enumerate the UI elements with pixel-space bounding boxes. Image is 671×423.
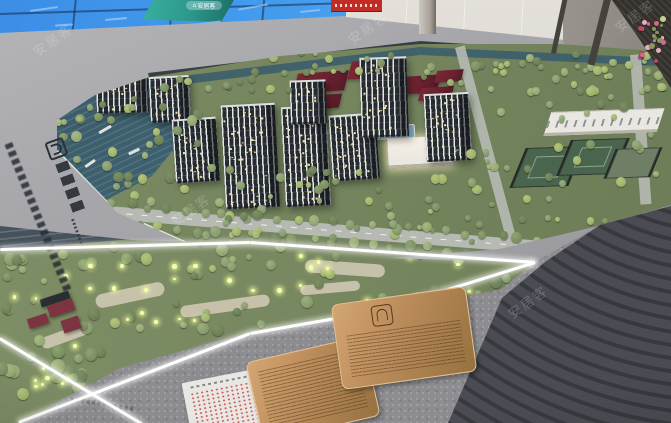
lit-window (256, 196, 258, 198)
tree (153, 57, 158, 62)
lit-window (251, 189, 253, 191)
lit-window (447, 130, 449, 132)
lit-window (308, 138, 310, 140)
tree (309, 166, 317, 174)
lit-window (121, 78, 123, 80)
tree (616, 177, 626, 187)
tree (3, 273, 11, 281)
tree (303, 69, 309, 75)
screen-map-line (105, 17, 127, 20)
tree (249, 87, 255, 93)
tree (252, 230, 260, 238)
screen-map-line (300, 9, 320, 13)
tree (632, 140, 642, 150)
tree (377, 59, 385, 67)
tree (73, 156, 80, 163)
tree (648, 132, 654, 138)
lit-window (200, 176, 202, 178)
tree (597, 100, 604, 107)
tree (546, 101, 553, 108)
tree (102, 161, 111, 170)
tree (110, 318, 119, 327)
tree (87, 104, 93, 110)
lit-window (259, 132, 261, 134)
park-light (41, 383, 44, 386)
park-light (178, 318, 181, 321)
lit-window (442, 120, 444, 122)
site-plan-red-units (189, 381, 258, 423)
lit-window (314, 97, 316, 99)
lit-window (314, 100, 316, 102)
tree (309, 215, 319, 225)
lit-window (312, 125, 314, 127)
tree (108, 147, 118, 157)
tree (193, 228, 202, 237)
tree (504, 61, 510, 67)
tree (355, 67, 363, 75)
lit-window (449, 99, 451, 101)
tree (12, 255, 22, 265)
park-light (193, 319, 196, 322)
lit-window (445, 129, 447, 131)
lit-window (286, 136, 288, 138)
lit-window (385, 105, 387, 107)
tree (461, 231, 468, 238)
park-light (299, 284, 302, 287)
tree (645, 68, 652, 75)
tree (478, 231, 486, 239)
tree (113, 183, 120, 190)
tree (115, 217, 123, 225)
lit-window (437, 123, 439, 125)
park-light (193, 264, 197, 268)
tree (601, 66, 608, 73)
tree (468, 178, 477, 187)
lit-window (455, 114, 457, 116)
tree (314, 279, 324, 289)
flower (654, 21, 659, 26)
lit-window (298, 149, 300, 151)
lit-window (200, 153, 202, 155)
lit-window (373, 129, 375, 131)
tree (233, 308, 241, 316)
lit-window (132, 66, 134, 68)
lit-window (114, 89, 116, 91)
tree (312, 63, 319, 70)
lit-window (231, 204, 233, 206)
tree (136, 324, 144, 332)
led-ticker-text-illegible (335, 4, 377, 7)
lit-window (252, 139, 254, 141)
lit-window (121, 63, 123, 65)
park-light (34, 385, 38, 389)
lit-window (388, 75, 390, 77)
residential-tower (289, 79, 327, 124)
tree (354, 225, 360, 231)
lit-window (224, 121, 226, 123)
lit-window (302, 140, 304, 142)
lit-window (198, 172, 200, 174)
lit-window (340, 128, 342, 130)
park-light (277, 288, 282, 293)
lit-window (299, 164, 301, 166)
lit-window (265, 200, 267, 202)
lit-window (446, 113, 448, 115)
lit-window (234, 172, 236, 174)
tree (83, 93, 89, 99)
lit-window (337, 155, 339, 157)
tree (493, 68, 498, 73)
lit-window (253, 203, 255, 205)
lit-window (196, 167, 198, 169)
lit-window (437, 134, 439, 136)
lit-window (364, 161, 366, 163)
tree (593, 66, 602, 75)
lit-window (295, 157, 297, 159)
tree (332, 252, 341, 261)
tree (524, 165, 531, 172)
tree (442, 226, 450, 234)
lit-window (195, 171, 197, 173)
lit-window (385, 74, 387, 76)
lit-window (367, 171, 369, 173)
tree (273, 216, 280, 223)
lit-window (234, 158, 236, 160)
tree (325, 269, 335, 279)
tree (519, 60, 526, 67)
lit-window (336, 168, 338, 170)
lit-window (384, 107, 386, 109)
lit-window (126, 79, 128, 81)
park-light (299, 254, 303, 258)
tree (212, 324, 224, 336)
lit-window (342, 142, 344, 144)
lit-window (453, 99, 455, 101)
tree (523, 195, 531, 203)
lit-window (240, 145, 242, 147)
sales-center-sandtable-photo: 安居客 安居客 安居客 安居客 安居客 ⌂ 安居客 (0, 0, 671, 423)
lit-window (302, 152, 304, 154)
park-light (173, 278, 176, 281)
lit-window (309, 191, 311, 193)
park-light (251, 289, 255, 293)
tree (107, 116, 115, 124)
lit-window (285, 128, 287, 130)
tree (19, 266, 26, 273)
tree (572, 51, 579, 58)
lit-window (287, 119, 289, 121)
flower (660, 16, 666, 22)
tree (210, 226, 220, 236)
lit-window (134, 83, 136, 85)
tree (340, 68, 345, 73)
lit-window (308, 164, 310, 166)
plaque-arch-logo (370, 303, 394, 327)
tree (476, 221, 483, 228)
flower (647, 22, 650, 25)
lit-window (191, 170, 193, 172)
house-icon: ⌂ (193, 3, 197, 9)
tree (471, 61, 480, 70)
tree (146, 141, 153, 148)
flower-arrangement (636, 16, 670, 64)
tree (124, 172, 133, 181)
lit-window (452, 131, 454, 133)
tree (571, 81, 577, 87)
park-light (61, 382, 64, 385)
lit-window (305, 150, 307, 152)
tree (532, 87, 540, 95)
lit-window (296, 100, 298, 102)
lit-window (305, 165, 307, 167)
lit-window (190, 153, 192, 155)
flower (649, 43, 655, 49)
tree (88, 308, 100, 320)
lit-window (305, 86, 307, 88)
tree (405, 240, 416, 251)
tree (519, 216, 526, 223)
residential-tower (423, 92, 471, 162)
lit-window (239, 159, 241, 161)
lit-window (432, 118, 434, 120)
tree (95, 347, 105, 357)
lit-window (390, 127, 392, 129)
park-light (172, 264, 176, 268)
tree (511, 232, 521, 242)
lit-window (125, 87, 127, 89)
tree (136, 221, 145, 230)
tree (173, 61, 179, 67)
tree (376, 187, 382, 193)
tree (458, 80, 463, 85)
lit-window (364, 116, 366, 118)
park-light (45, 376, 49, 380)
arch-icon (376, 308, 389, 321)
tree (286, 87, 292, 93)
tree (488, 86, 494, 92)
lit-window (304, 179, 306, 181)
tree (611, 114, 617, 120)
tree (375, 68, 380, 73)
tree (369, 240, 378, 249)
tree (490, 277, 501, 288)
tree (269, 53, 278, 62)
lit-window (254, 121, 256, 123)
lit-window (163, 114, 165, 116)
lit-window (298, 94, 300, 96)
lit-window (266, 175, 268, 177)
lit-window (373, 132, 375, 134)
tree (257, 320, 265, 328)
lit-window (242, 158, 244, 160)
lit-window (351, 144, 353, 146)
lit-window (183, 153, 185, 155)
park-light (73, 344, 77, 348)
park-light (88, 287, 91, 290)
lit-window (156, 93, 158, 95)
lit-window (380, 110, 382, 112)
tree (197, 323, 209, 335)
tree (552, 75, 560, 83)
lit-window (443, 147, 445, 149)
lit-window (440, 113, 442, 115)
lit-window (364, 93, 366, 95)
tree (201, 313, 210, 322)
tree (561, 68, 569, 76)
tree (389, 220, 397, 228)
tree (500, 69, 507, 76)
lit-window (262, 186, 264, 188)
lit-window (261, 118, 263, 120)
lit-window (285, 115, 287, 117)
tree (405, 223, 412, 230)
tree (63, 88, 74, 99)
tree (187, 115, 197, 125)
park-path (180, 294, 271, 318)
tree (490, 163, 498, 171)
tree (246, 254, 252, 260)
lit-window (231, 133, 233, 135)
flower (660, 24, 663, 27)
tree (555, 217, 560, 222)
lit-window (371, 70, 373, 72)
tree (583, 68, 588, 73)
lit-window (444, 124, 446, 126)
lit-window (367, 72, 369, 74)
lit-window (112, 93, 114, 95)
lit-window (178, 177, 180, 179)
tree (191, 272, 198, 279)
lit-window (369, 117, 371, 119)
lit-window (371, 102, 373, 104)
tree (485, 159, 490, 164)
lit-window (437, 116, 439, 118)
tree (180, 185, 188, 193)
tree (504, 165, 510, 171)
tree (447, 79, 454, 86)
lit-window (373, 98, 375, 100)
tree (489, 202, 495, 208)
tree (227, 262, 236, 271)
lit-window (178, 114, 180, 116)
park-light (456, 263, 460, 267)
tree (577, 87, 584, 94)
lit-window (288, 169, 290, 171)
lit-window (254, 152, 256, 154)
tree (241, 302, 248, 309)
tree (584, 110, 589, 115)
flower (640, 53, 644, 57)
tree (2, 303, 13, 314)
lit-window (303, 196, 305, 198)
tree (575, 64, 580, 69)
tree (209, 265, 216, 272)
lit-window (171, 88, 173, 90)
lit-window (373, 116, 375, 118)
tree (385, 202, 393, 210)
tree (424, 69, 430, 75)
lit-window (122, 93, 124, 95)
tree (165, 172, 176, 183)
lit-window (244, 112, 246, 114)
tree (432, 203, 440, 211)
tree (607, 73, 613, 79)
tree (76, 116, 83, 123)
tree (388, 52, 394, 58)
lit-window (444, 102, 446, 104)
lit-window (433, 126, 435, 128)
tree (215, 198, 224, 207)
tree (587, 217, 595, 225)
lit-window (309, 110, 311, 112)
lit-window (301, 134, 303, 136)
lit-window (454, 150, 456, 152)
lit-window (389, 88, 391, 90)
park-path (300, 280, 361, 295)
lit-window (172, 102, 174, 104)
tree (369, 221, 376, 228)
tree (202, 231, 210, 239)
tree (349, 237, 359, 247)
tree (364, 56, 370, 62)
lit-window (431, 140, 433, 142)
tree (138, 174, 148, 184)
lit-window (174, 84, 176, 86)
park-light (227, 278, 232, 283)
plaque-engraved-text-illegible (346, 318, 466, 380)
lit-window (261, 131, 263, 133)
lit-window (177, 95, 179, 97)
tree (323, 171, 328, 176)
park-light (140, 311, 144, 315)
tree (237, 79, 244, 86)
lit-window (159, 95, 161, 97)
park-light (467, 290, 471, 294)
lit-window (457, 149, 459, 151)
lit-window (235, 176, 237, 178)
tree (545, 215, 551, 221)
tree (483, 149, 489, 155)
tree (180, 322, 186, 328)
lit-window (357, 155, 359, 157)
lit-window (165, 94, 167, 96)
flower (661, 40, 666, 45)
tree (173, 300, 180, 307)
lit-window (288, 184, 290, 186)
tree (644, 85, 651, 92)
tree (154, 135, 164, 145)
lit-window (306, 102, 308, 104)
wall-column (419, 0, 436, 34)
lit-window (108, 75, 110, 77)
lit-window (181, 134, 183, 136)
tree (425, 196, 432, 203)
tree (524, 251, 534, 261)
lit-window (288, 129, 290, 131)
tree (176, 76, 183, 83)
tree (71, 131, 82, 142)
tree (608, 94, 614, 100)
park-light (326, 267, 329, 270)
tree (298, 49, 306, 57)
tree (497, 108, 505, 116)
tree (276, 173, 285, 182)
lit-window (376, 88, 378, 90)
tree (387, 212, 396, 221)
lit-window (312, 198, 314, 200)
tree (113, 172, 124, 183)
lit-window (308, 91, 310, 93)
